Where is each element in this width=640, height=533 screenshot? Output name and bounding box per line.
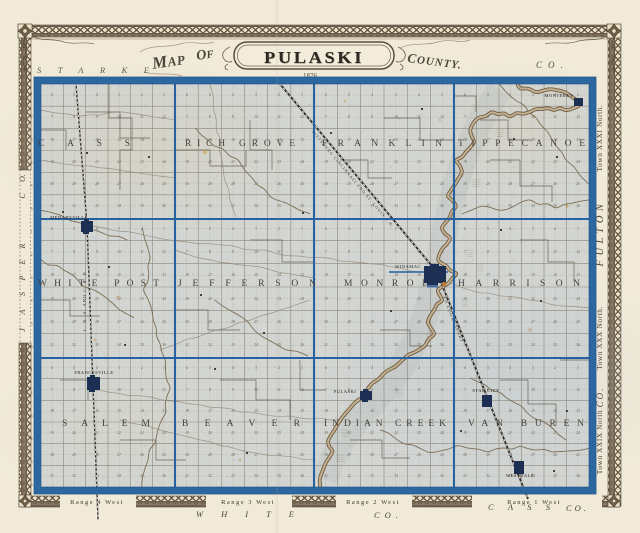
svg-text:3: 3: [255, 227, 257, 231]
svg-text:A: A: [18, 309, 27, 315]
svg-text:26: 26: [417, 320, 421, 324]
svg-text:3: 3: [118, 227, 120, 231]
svg-text:2: 2: [418, 227, 420, 231]
svg-text:35: 35: [140, 343, 144, 347]
svg-text:23: 23: [417, 431, 421, 435]
svg-text:22: 22: [531, 431, 535, 435]
svg-text:26: 26: [417, 182, 421, 186]
svg-text:25: 25: [576, 182, 580, 186]
svg-text:15: 15: [531, 409, 535, 413]
svg-text:31: 31: [324, 204, 328, 208]
svg-text:30: 30: [324, 182, 328, 186]
svg-text:20: 20: [72, 160, 76, 164]
svg-text:23: 23: [277, 160, 281, 164]
svg-text:5: 5: [73, 93, 75, 97]
svg-text:20: 20: [486, 297, 490, 301]
svg-text:6: 6: [51, 366, 53, 370]
svg-text:29: 29: [208, 320, 212, 324]
svg-text:10: 10: [117, 115, 121, 119]
svg-text:13: 13: [162, 138, 166, 142]
svg-text:6: 6: [186, 366, 188, 370]
svg-text:2: 2: [278, 366, 280, 370]
svg-text:33: 33: [370, 343, 374, 347]
svg-text:1: 1: [31, 230, 33, 234]
svg-text:34: 34: [117, 343, 121, 347]
svg-text:23: 23: [553, 297, 557, 301]
svg-text:28: 28: [508, 320, 512, 324]
svg-text:32: 32: [347, 204, 351, 208]
svg-text:30: 30: [463, 453, 467, 457]
svg-text:MEDARYVILLE: MEDARYVILLE: [50, 215, 88, 220]
svg-text:35: 35: [277, 204, 281, 208]
svg-text:4: 4: [31, 437, 33, 441]
svg-text:32: 32: [72, 204, 76, 208]
svg-text:28: 28: [370, 182, 374, 186]
svg-text:24: 24: [300, 431, 304, 435]
svg-text:6: 6: [31, 345, 33, 349]
svg-text:29: 29: [347, 320, 351, 324]
svg-text:14: 14: [417, 409, 421, 413]
svg-text:3: 3: [118, 366, 120, 370]
svg-text:6: 6: [186, 227, 188, 231]
svg-text:35: 35: [417, 343, 421, 347]
svg-text:WHITE: WHITE: [196, 509, 308, 519]
svg-text:18: 18: [50, 273, 54, 277]
svg-text:26: 26: [417, 453, 421, 457]
svg-text:6: 6: [464, 93, 466, 97]
svg-text:32: 32: [72, 474, 76, 478]
svg-text:25: 25: [300, 453, 304, 457]
svg-text:14: 14: [140, 273, 144, 277]
svg-text:34: 34: [254, 204, 258, 208]
svg-text:18: 18: [324, 409, 328, 413]
svg-text:21: 21: [508, 297, 512, 301]
svg-text:5: 5: [31, 460, 33, 464]
svg-text:12: 12: [300, 115, 304, 119]
svg-text:21: 21: [370, 297, 374, 301]
svg-text:30: 30: [463, 320, 467, 324]
svg-text:31: 31: [324, 474, 328, 478]
svg-text:24: 24: [162, 160, 166, 164]
svg-text:14: 14: [140, 138, 144, 142]
svg-text:24: 24: [162, 297, 166, 301]
svg-text:23: 23: [140, 431, 144, 435]
svg-text:16: 16: [508, 273, 512, 277]
svg-text:13: 13: [300, 138, 304, 142]
svg-text:5: 5: [73, 227, 75, 231]
svg-text:31: 31: [463, 474, 467, 478]
svg-text:26: 26: [553, 320, 557, 324]
svg-text:23: 23: [277, 297, 281, 301]
svg-text:6: 6: [31, 207, 33, 211]
svg-text:10: 10: [394, 115, 398, 119]
svg-text:19: 19: [185, 297, 189, 301]
svg-text:35: 35: [553, 343, 557, 347]
svg-text:21: 21: [95, 297, 99, 301]
svg-text:19: 19: [50, 431, 54, 435]
svg-text:30: 30: [50, 453, 54, 457]
svg-text:CO.: CO.: [374, 510, 403, 520]
svg-text:13: 13: [162, 273, 166, 277]
svg-text:6: 6: [51, 227, 53, 231]
svg-text:1: 1: [441, 93, 443, 97]
svg-text:14: 14: [277, 409, 281, 413]
svg-text:2: 2: [418, 366, 420, 370]
svg-text:36: 36: [162, 204, 166, 208]
svg-text:22: 22: [394, 160, 398, 164]
svg-text:14: 14: [553, 409, 557, 413]
svg-text:36: 36: [300, 204, 304, 208]
svg-text:3: 3: [118, 93, 120, 97]
svg-text:30: 30: [463, 182, 467, 186]
svg-text:WESTDALE: WESTDALE: [506, 473, 534, 478]
svg-text:32: 32: [347, 474, 351, 478]
svg-text:13: 13: [576, 409, 580, 413]
svg-text:21: 21: [508, 431, 512, 435]
svg-text:25: 25: [440, 320, 444, 324]
svg-text:20: 20: [208, 431, 212, 435]
svg-text:36: 36: [440, 474, 444, 478]
svg-text:34: 34: [531, 204, 535, 208]
svg-text:15: 15: [117, 138, 121, 142]
svg-text:29: 29: [208, 182, 212, 186]
svg-text:11: 11: [140, 115, 144, 119]
svg-text:5: 5: [487, 227, 489, 231]
svg-text:25: 25: [162, 453, 166, 457]
svg-text:31: 31: [463, 204, 467, 208]
svg-text:3: 3: [255, 366, 257, 370]
svg-text:31: 31: [324, 343, 328, 347]
svg-text:1: 1: [163, 227, 165, 231]
svg-text:25: 25: [300, 320, 304, 324]
svg-text:2: 2: [278, 93, 280, 97]
svg-text:6: 6: [325, 227, 327, 231]
svg-text:2: 2: [418, 93, 420, 97]
svg-text:9: 9: [371, 115, 373, 119]
svg-text:5: 5: [209, 93, 211, 97]
svg-text:21: 21: [231, 431, 235, 435]
svg-text:10: 10: [117, 388, 121, 392]
svg-text:32: 32: [486, 343, 490, 347]
svg-text:31: 31: [50, 204, 54, 208]
svg-text:20: 20: [486, 431, 490, 435]
svg-text:32: 32: [347, 343, 351, 347]
svg-text:3: 3: [31, 414, 33, 418]
svg-text:19: 19: [50, 297, 54, 301]
svg-text:19: 19: [324, 431, 328, 435]
svg-text:6: 6: [51, 93, 53, 97]
svg-text:29: 29: [72, 182, 76, 186]
svg-text:9: 9: [371, 250, 373, 254]
svg-text:34: 34: [254, 474, 258, 478]
svg-text:11: 11: [140, 388, 144, 392]
svg-text:13: 13: [440, 409, 444, 413]
svg-text:FRANCESVILLE: FRANCESVILLE: [74, 370, 113, 375]
svg-text:6: 6: [186, 93, 188, 97]
svg-text:33: 33: [231, 343, 235, 347]
svg-text:18: 18: [324, 273, 328, 277]
svg-text:9: 9: [232, 115, 234, 119]
svg-text:6: 6: [464, 366, 466, 370]
svg-text:10: 10: [531, 388, 535, 392]
svg-text:Range 1 West: Range 1 West: [507, 499, 561, 506]
svg-text:2: 2: [31, 391, 33, 395]
svg-text:FULTON: FULTON: [595, 200, 606, 268]
svg-text:10: 10: [394, 250, 398, 254]
svg-text:20: 20: [486, 160, 490, 164]
svg-text:11: 11: [140, 250, 144, 254]
svg-text:25: 25: [440, 182, 444, 186]
svg-text:23: 23: [140, 297, 144, 301]
svg-text:36: 36: [300, 474, 304, 478]
svg-text:21: 21: [370, 160, 374, 164]
svg-text:34: 34: [254, 343, 258, 347]
svg-text:32: 32: [72, 343, 76, 347]
svg-text:19: 19: [324, 160, 328, 164]
svg-text:18: 18: [50, 409, 54, 413]
svg-text:4: 4: [371, 227, 373, 231]
svg-text:9: 9: [509, 250, 511, 254]
svg-text:24: 24: [300, 160, 304, 164]
svg-text:24: 24: [576, 431, 580, 435]
svg-text:29: 29: [486, 453, 490, 457]
svg-text:PULASKI: PULASKI: [334, 389, 357, 394]
svg-text:25: 25: [162, 320, 166, 324]
svg-text:16: 16: [370, 273, 374, 277]
svg-text:11: 11: [277, 115, 281, 119]
svg-text:22: 22: [254, 297, 258, 301]
svg-text:20: 20: [72, 431, 76, 435]
svg-text:18: 18: [185, 273, 189, 277]
svg-text:15: 15: [254, 409, 258, 413]
svg-text:28: 28: [95, 182, 99, 186]
svg-text:28: 28: [508, 182, 512, 186]
svg-text:3: 3: [395, 227, 397, 231]
svg-text:4: 4: [232, 366, 234, 370]
svg-text:2: 2: [141, 93, 143, 97]
svg-text:14: 14: [140, 409, 144, 413]
svg-text:26: 26: [553, 182, 557, 186]
svg-text:36: 36: [576, 204, 580, 208]
svg-text:26: 26: [277, 320, 281, 324]
svg-text:34: 34: [117, 204, 121, 208]
svg-text:23: 23: [417, 297, 421, 301]
svg-text:24: 24: [576, 297, 580, 301]
svg-text:5: 5: [209, 366, 211, 370]
svg-text:MONTEREY: MONTEREY: [545, 93, 574, 98]
svg-text:34: 34: [394, 343, 398, 347]
svg-text:29: 29: [208, 453, 212, 457]
svg-text:19: 19: [463, 431, 467, 435]
svg-text:10: 10: [117, 250, 121, 254]
svg-text:34: 34: [394, 204, 398, 208]
svg-text:11: 11: [417, 388, 421, 392]
svg-text:18: 18: [50, 138, 54, 142]
svg-text:25: 25: [300, 182, 304, 186]
svg-text:23: 23: [277, 431, 281, 435]
svg-text:4: 4: [371, 366, 373, 370]
svg-text:2: 2: [278, 227, 280, 231]
svg-text:11: 11: [553, 115, 557, 119]
svg-text:36: 36: [162, 343, 166, 347]
svg-text:20: 20: [347, 297, 351, 301]
svg-text:26: 26: [553, 453, 557, 457]
svg-text:19: 19: [463, 297, 467, 301]
svg-text:13: 13: [576, 273, 580, 277]
svg-text:30: 30: [324, 320, 328, 324]
svg-text:16: 16: [508, 409, 512, 413]
svg-text:23: 23: [553, 431, 557, 435]
svg-text:19: 19: [463, 160, 467, 164]
svg-text:3: 3: [532, 366, 534, 370]
svg-text:VAN BUREN: VAN BUREN: [468, 419, 584, 429]
svg-text:1: 1: [163, 93, 165, 97]
svg-text:32: 32: [208, 474, 212, 478]
svg-text:24: 24: [440, 160, 444, 164]
svg-text:20: 20: [347, 160, 351, 164]
svg-text:5: 5: [348, 227, 350, 231]
svg-text:4: 4: [509, 227, 511, 231]
svg-text:32: 32: [486, 474, 490, 478]
svg-text:6: 6: [325, 93, 327, 97]
svg-text:25: 25: [576, 453, 580, 457]
svg-text:15: 15: [117, 273, 121, 277]
svg-text:31: 31: [50, 343, 54, 347]
svg-text:12: 12: [440, 388, 444, 392]
svg-text:5: 5: [348, 366, 350, 370]
svg-text:22: 22: [117, 431, 121, 435]
svg-text:4: 4: [232, 227, 234, 231]
svg-text:21: 21: [370, 431, 374, 435]
svg-text:9: 9: [509, 388, 511, 392]
svg-text:20: 20: [72, 297, 76, 301]
svg-text:2: 2: [554, 227, 556, 231]
svg-text:36: 36: [576, 474, 580, 478]
svg-text:21: 21: [231, 160, 235, 164]
svg-text:23: 23: [553, 160, 557, 164]
svg-text:24: 24: [300, 297, 304, 301]
svg-text:36: 36: [440, 343, 444, 347]
svg-text:34: 34: [117, 474, 121, 478]
svg-text:22: 22: [254, 431, 258, 435]
svg-text:1: 1: [577, 366, 579, 370]
svg-text:13: 13: [300, 409, 304, 413]
svg-text:29: 29: [347, 453, 351, 457]
svg-text:11: 11: [553, 388, 557, 392]
svg-text:31: 31: [185, 343, 189, 347]
svg-text:31: 31: [185, 474, 189, 478]
svg-text:34: 34: [531, 343, 535, 347]
svg-text:16: 16: [231, 273, 235, 277]
svg-text:36: 36: [162, 474, 166, 478]
svg-text:25: 25: [576, 320, 580, 324]
svg-text:28: 28: [231, 320, 235, 324]
svg-text:12: 12: [440, 115, 444, 119]
svg-text:20: 20: [208, 297, 212, 301]
svg-text:34: 34: [394, 474, 398, 478]
svg-text:21: 21: [231, 297, 235, 301]
svg-text:5: 5: [487, 93, 489, 97]
svg-text:3: 3: [31, 138, 33, 142]
svg-text:18: 18: [185, 409, 189, 413]
svg-text:12: 12: [576, 388, 580, 392]
svg-text:35: 35: [417, 474, 421, 478]
svg-text:6: 6: [31, 483, 33, 487]
svg-text:3: 3: [31, 276, 33, 280]
svg-text:8: 8: [348, 115, 350, 119]
svg-text:CO.: CO.: [566, 503, 589, 513]
svg-text:E: E: [18, 259, 27, 265]
svg-text:5: 5: [487, 366, 489, 370]
svg-text:15: 15: [531, 273, 535, 277]
svg-text:1: 1: [577, 93, 579, 97]
svg-text:12: 12: [576, 250, 580, 254]
svg-text:28: 28: [95, 320, 99, 324]
svg-text:30: 30: [50, 182, 54, 186]
svg-text:8: 8: [487, 250, 489, 254]
svg-text:14: 14: [277, 273, 281, 277]
svg-text:35: 35: [277, 474, 281, 478]
svg-text:28: 28: [231, 453, 235, 457]
svg-text:26: 26: [140, 320, 144, 324]
svg-text:21: 21: [95, 160, 99, 164]
svg-text:15: 15: [117, 409, 121, 413]
svg-text:3: 3: [532, 93, 534, 97]
svg-text:28: 28: [370, 453, 374, 457]
svg-text:1: 1: [301, 227, 303, 231]
svg-text:29: 29: [347, 182, 351, 186]
svg-text:12: 12: [162, 250, 166, 254]
svg-text:15: 15: [394, 409, 398, 413]
svg-text:4: 4: [232, 93, 234, 97]
svg-text:36: 36: [576, 343, 580, 347]
svg-text:8: 8: [209, 250, 211, 254]
svg-text:16: 16: [95, 273, 99, 277]
svg-text:36: 36: [440, 204, 444, 208]
svg-text:6: 6: [464, 227, 466, 231]
svg-text:16: 16: [370, 409, 374, 413]
svg-text:4: 4: [96, 93, 98, 97]
svg-text:14: 14: [417, 273, 421, 277]
svg-text:PULASKI: PULASKI: [264, 48, 364, 67]
svg-text:26: 26: [140, 182, 144, 186]
svg-text:8: 8: [209, 388, 211, 392]
svg-text:1: 1: [163, 366, 165, 370]
svg-text:S: S: [18, 292, 27, 296]
svg-text:8: 8: [73, 388, 75, 392]
svg-text:19: 19: [185, 431, 189, 435]
svg-text:Range 3 West: Range 3 West: [221, 499, 275, 506]
svg-text:10: 10: [254, 115, 258, 119]
svg-text:12: 12: [576, 115, 580, 119]
svg-text:33: 33: [508, 343, 512, 347]
svg-text:23: 23: [140, 160, 144, 164]
svg-text:22: 22: [117, 160, 121, 164]
svg-text:19: 19: [324, 297, 328, 301]
svg-text:2: 2: [31, 115, 33, 119]
svg-text:4: 4: [31, 299, 33, 303]
svg-text:15: 15: [254, 273, 258, 277]
svg-text:35: 35: [417, 204, 421, 208]
svg-text:3: 3: [532, 227, 534, 231]
svg-text:26: 26: [140, 453, 144, 457]
svg-text:30: 30: [185, 320, 189, 324]
svg-text:28: 28: [231, 182, 235, 186]
svg-text:J: J: [18, 328, 27, 332]
svg-text:36: 36: [300, 343, 304, 347]
svg-text:21: 21: [508, 160, 512, 164]
svg-text:1: 1: [31, 92, 33, 96]
